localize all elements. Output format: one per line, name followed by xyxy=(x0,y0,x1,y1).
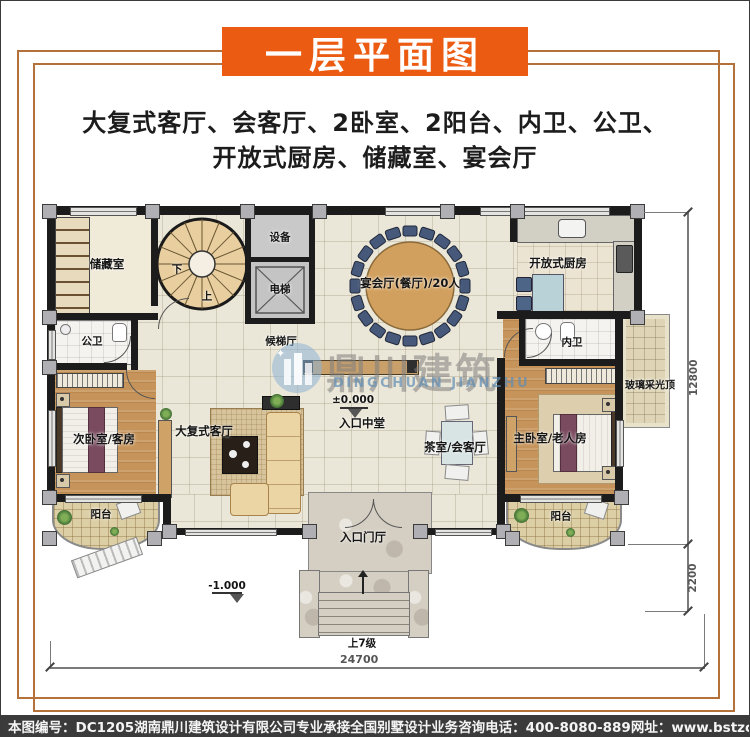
sofa-long xyxy=(266,412,301,514)
pillar xyxy=(147,531,162,546)
window xyxy=(616,420,624,467)
extension-line xyxy=(644,212,688,213)
level-minus-label: -1.000 xyxy=(208,580,246,592)
stair-down-label: 下 xyxy=(172,262,183,277)
level-zero-label: ±0.000 xyxy=(332,394,374,406)
room-label-inner-wc: 内卫 xyxy=(562,335,583,350)
stair-up-label: 上 xyxy=(202,289,213,304)
stair-arrow-head xyxy=(358,570,368,577)
entry-bench xyxy=(303,360,419,375)
window xyxy=(70,207,137,216)
room-label-balcony-left: 阳台 xyxy=(91,507,112,522)
wall-segment xyxy=(634,206,642,318)
pillar xyxy=(42,490,57,505)
pillar xyxy=(505,531,520,546)
glass-skylight xyxy=(621,314,670,428)
window xyxy=(520,207,610,216)
window xyxy=(48,410,56,467)
room-label-second-bedroom: 次卧室/客房 xyxy=(73,431,135,447)
wall-segment xyxy=(151,206,158,306)
room-label-tea-room: 茶室/会客厅 xyxy=(424,439,486,455)
nightstand-lamp xyxy=(56,393,70,407)
dimension-line xyxy=(687,212,689,612)
level-zero-triangle-icon xyxy=(348,409,362,418)
room-label-master-bedroom: 主卧室/老人房 xyxy=(513,430,586,446)
wall-segment xyxy=(497,358,505,502)
wall-segment xyxy=(519,318,525,363)
sofa-chaise xyxy=(230,483,269,516)
tea-chair xyxy=(445,404,470,421)
window xyxy=(435,529,492,536)
footer-phone: 咨询电话：400-8080-889 xyxy=(458,716,631,736)
room-label-equipment: 设备 xyxy=(270,230,291,245)
room-label-public-wc: 公卫 xyxy=(82,334,103,349)
pillar xyxy=(312,204,327,219)
extension-line xyxy=(645,611,688,612)
plant xyxy=(514,508,529,523)
kitchen-chair xyxy=(516,296,532,311)
pillar xyxy=(630,204,645,219)
entry-bench-end xyxy=(407,360,417,373)
window xyxy=(185,529,277,536)
dimension-bottom: 24700 xyxy=(340,653,378,666)
description-line-1: 大复式客厅、会客厅、2卧室、2阳台、内卫、公卫、 xyxy=(0,103,750,138)
coffee-table-plate xyxy=(229,450,237,458)
pillar xyxy=(240,204,255,219)
stair-cheek-wall xyxy=(408,570,429,638)
pillar xyxy=(413,524,428,539)
room-label-elevator-hall: 候梯厅 xyxy=(265,334,297,349)
room-label-kitchen: 开放式厨房 xyxy=(529,255,587,271)
plant xyxy=(57,510,72,525)
footer-bar: 本图编号：DC1205 湖南鼎川建筑设计有限公司专业承接全国别墅设计业务 咨询电… xyxy=(0,715,750,737)
wall-segment xyxy=(47,313,158,320)
window xyxy=(520,495,602,503)
extension-line xyxy=(704,614,705,669)
bedroom-cabinet xyxy=(158,420,172,498)
window xyxy=(48,330,56,360)
page-title: 一层平面图 xyxy=(265,25,485,79)
dimension-right-lower: 2200 xyxy=(687,563,699,593)
wall-segment xyxy=(615,311,623,502)
room-label-elevator: 电梯 xyxy=(270,282,291,297)
pillar xyxy=(145,204,160,219)
pillar xyxy=(42,531,57,546)
wardrobe-left xyxy=(56,373,124,388)
pillar xyxy=(162,524,177,539)
wall-segment xyxy=(245,257,315,262)
room-label-living: 大复式客厅 xyxy=(175,423,233,439)
wardrobe-right xyxy=(545,368,617,384)
entry-bench-end xyxy=(303,360,313,373)
plant xyxy=(110,527,119,536)
plant xyxy=(566,528,575,537)
pillar xyxy=(510,204,525,219)
pillar xyxy=(440,204,455,219)
window xyxy=(65,495,142,503)
plant xyxy=(270,394,284,408)
nightstand-lamp xyxy=(602,398,616,412)
entry-steps xyxy=(318,592,410,636)
hall-floor-extension xyxy=(428,494,498,530)
tea-chair xyxy=(444,464,469,481)
window xyxy=(480,207,514,216)
wall-segment xyxy=(245,206,251,324)
wall-segment xyxy=(47,363,127,370)
pillar xyxy=(42,310,57,325)
coffee-table xyxy=(222,436,258,474)
stair-cheek-wall xyxy=(299,570,320,638)
coffee-table-plate xyxy=(242,461,249,468)
room-label-skylight: 玻璃采光顶 xyxy=(625,377,675,392)
wall-segment xyxy=(245,318,315,324)
extension-line xyxy=(628,544,688,545)
pillar xyxy=(42,360,57,375)
stair-direction-arrow xyxy=(362,574,364,594)
footer-company: 湖南鼎川建筑设计有限公司专业承接全国别墅设计业务 xyxy=(134,716,458,736)
coffee-table-plate xyxy=(243,441,250,448)
wall-segment xyxy=(131,313,138,370)
wall-segment xyxy=(519,359,622,366)
description-line-2: 开放式厨房、储藏室、宴会厅 xyxy=(0,138,750,173)
room-label-storage: 储藏室 xyxy=(90,256,125,272)
window xyxy=(385,207,442,216)
nightstand-lamp xyxy=(602,466,616,480)
dimension-right-main: 12800 xyxy=(688,360,700,396)
room-label-entry-center: 入口中堂 xyxy=(339,415,385,431)
room-label-banquet: 宴会厅(餐厅)/20人 xyxy=(360,275,460,291)
pillar xyxy=(614,490,629,505)
shower-head xyxy=(60,324,71,335)
room-label-balcony-right: 阳台 xyxy=(551,509,572,524)
kitchen-chair xyxy=(516,277,532,292)
footer-plan-number: 本图编号：DC1205 xyxy=(8,716,134,736)
footer-website: 网址：www.bstzcs.com xyxy=(631,716,750,736)
pillar xyxy=(302,524,317,539)
plant xyxy=(160,408,172,420)
kitchen-sink xyxy=(558,219,586,238)
level-minus-triangle-icon xyxy=(230,594,244,603)
storage-shelving xyxy=(55,217,90,314)
steps-note-label: 上7级 xyxy=(348,636,376,651)
title-banner: 一层平面图 xyxy=(222,27,528,76)
dimension-line xyxy=(50,667,705,669)
wall-segment xyxy=(309,206,315,324)
kitchen-stove xyxy=(616,245,633,273)
pillar xyxy=(630,310,645,325)
pillar xyxy=(42,204,57,219)
room-label-entry-foyer: 入口门厅 xyxy=(340,529,386,545)
pillar xyxy=(610,531,625,546)
nightstand-lamp xyxy=(56,474,70,488)
kitchen-island-table xyxy=(532,274,564,314)
